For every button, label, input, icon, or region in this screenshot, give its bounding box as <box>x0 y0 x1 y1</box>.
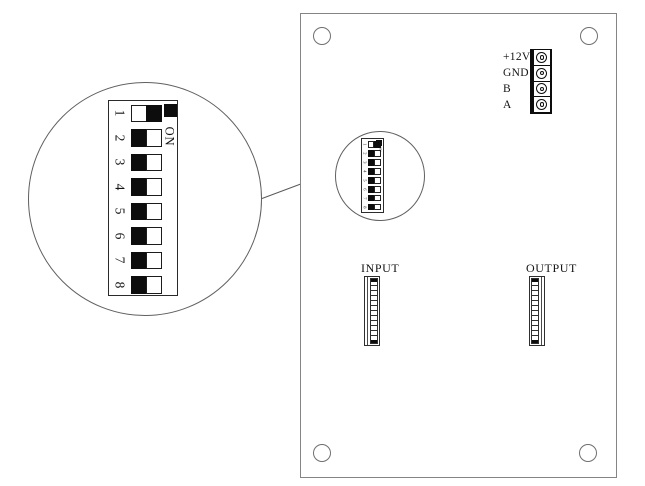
mini-dip-number: 3 <box>361 161 368 163</box>
terminal-cell <box>534 66 550 81</box>
dip-switch-number-text: 3 <box>112 159 128 166</box>
mounting-hole-top-right <box>580 27 598 45</box>
input-connector-inner-line <box>367 277 368 345</box>
screw-dot-icon <box>540 55 545 60</box>
screw-dot-icon <box>540 87 545 92</box>
terminal-labels: +12VGNDBA <box>503 49 531 114</box>
dip-switch-actuator <box>131 227 147 245</box>
terminal-label: B <box>503 81 531 97</box>
on-label: ON <box>162 126 177 146</box>
dip-switch-miniature: 12345678 ON <box>361 138 384 213</box>
mini-dip-number: 6 <box>361 188 368 190</box>
dip-switch-slot <box>146 276 162 294</box>
mini-dip-row: 5 <box>362 177 383 184</box>
dip-switch-number-text: 8 <box>112 281 128 288</box>
mini-dip-number: 1 <box>361 143 368 145</box>
dip-switch-number-text: 5 <box>112 208 128 215</box>
mini-dip-number: 4 <box>361 170 368 172</box>
board-outline: +12VGNDBA 12345678 ON INPUT OUTPUT <box>300 13 617 478</box>
dip-switch-slot <box>146 154 162 172</box>
dip-switch-number-text: 4 <box>112 183 128 190</box>
mini-dip-row: 6 <box>362 186 383 193</box>
dip-switch-actuator <box>131 276 147 294</box>
mini-dip-slot <box>374 177 380 184</box>
dip-switch-number: 7 <box>110 252 129 270</box>
terminal-label: GND <box>503 65 531 81</box>
dip-switch-detail-callout: 12345678 ON <box>28 82 262 316</box>
input-connector-label: INPUT <box>361 261 399 276</box>
on-label-box: ON <box>160 119 178 154</box>
output-connector <box>529 276 545 346</box>
mini-dip-number: 8 <box>361 206 368 208</box>
screw-terminal-icon <box>536 52 547 63</box>
dip-switch-number: 1 <box>110 105 129 123</box>
dip-switch-number: 4 <box>110 178 129 196</box>
mini-dip-slot <box>374 186 380 193</box>
wiring-diagram-canvas: +12VGNDBA 12345678 ON INPUT OUTPUT 12345… <box>0 0 645 486</box>
terminal-cell <box>534 50 550 65</box>
mini-dip-slot <box>374 195 380 202</box>
mini-dip-number: 2 <box>361 152 368 154</box>
dip-switch-number-text: 7 <box>112 257 128 264</box>
mounting-hole-top-left <box>313 27 331 45</box>
dip-switch-row: 3 <box>109 154 177 172</box>
dip-switch-actuator <box>131 154 147 172</box>
mini-dip-row: 3 <box>362 159 383 166</box>
input-connector <box>364 276 380 346</box>
terminal-cell <box>534 97 550 112</box>
output-connector-label: OUTPUT <box>526 261 577 276</box>
mini-on-indicator-square <box>376 140 382 146</box>
mini-dip-row: 7 <box>362 195 383 202</box>
dip-switch-number: 2 <box>110 129 129 147</box>
mini-on-label: ON <box>379 146 383 151</box>
dip-switch-number: 3 <box>110 154 129 172</box>
mini-dip-slot <box>374 159 380 166</box>
terminal-cell <box>534 82 550 97</box>
dip-switch-number: 6 <box>110 227 129 245</box>
terminal-label: +12V <box>503 49 531 65</box>
dip-switch-actuator <box>131 129 147 147</box>
mini-dip-number: 5 <box>361 179 368 181</box>
screw-dot-icon <box>540 71 545 76</box>
dip-switch-number-text: 1 <box>112 110 128 117</box>
pin-ladder <box>370 278 378 344</box>
terminal-label: A <box>503 97 531 113</box>
mini-dip-slot <box>374 168 380 175</box>
mini-dip-row: 4 <box>362 168 383 175</box>
dip-switch-row: 6 <box>109 227 177 245</box>
dip-switch-slot <box>146 178 162 196</box>
screw-terminal-icon <box>536 68 547 79</box>
screw-dot-icon <box>540 102 545 107</box>
pin-ladder <box>531 278 539 344</box>
pin-cell <box>532 336 538 340</box>
dip-switch-number-text: 6 <box>112 232 128 239</box>
power-terminal-block <box>530 49 552 114</box>
dip-switch-slot <box>146 227 162 245</box>
screw-terminal-icon <box>536 83 547 94</box>
dip-switch-slot <box>146 252 162 270</box>
mounting-hole-bottom-left <box>313 444 331 462</box>
dip-switch-row: 7 <box>109 252 177 270</box>
dip-switch-number: 5 <box>110 203 129 221</box>
dip-switch-slot <box>131 105 147 123</box>
dip-switch-actuator <box>131 203 147 221</box>
dip-switch-row: 8 <box>109 276 177 294</box>
output-connector-inner-line <box>541 277 542 345</box>
mini-dip-slot <box>374 204 380 211</box>
dip-switch-location-circle: 12345678 ON <box>335 131 425 221</box>
mounting-hole-bottom-right <box>579 444 597 462</box>
screw-terminal-icon <box>536 99 547 110</box>
dip-switch-row: 5 <box>109 203 177 221</box>
dip-switch-actuator <box>131 178 147 196</box>
on-indicator-square <box>164 104 177 117</box>
dip-switch-row: 4 <box>109 178 177 196</box>
dip-switch-number: 8 <box>110 276 129 294</box>
pin-cell <box>371 336 377 340</box>
dip-switch-detail: 12345678 ON <box>108 100 178 296</box>
mini-dip-number: 7 <box>361 197 368 199</box>
dip-switch-number-text: 2 <box>112 134 128 141</box>
dip-switch-actuator <box>131 252 147 270</box>
mini-dip-row: 8 <box>362 204 383 211</box>
dip-switch-slot <box>146 203 162 221</box>
